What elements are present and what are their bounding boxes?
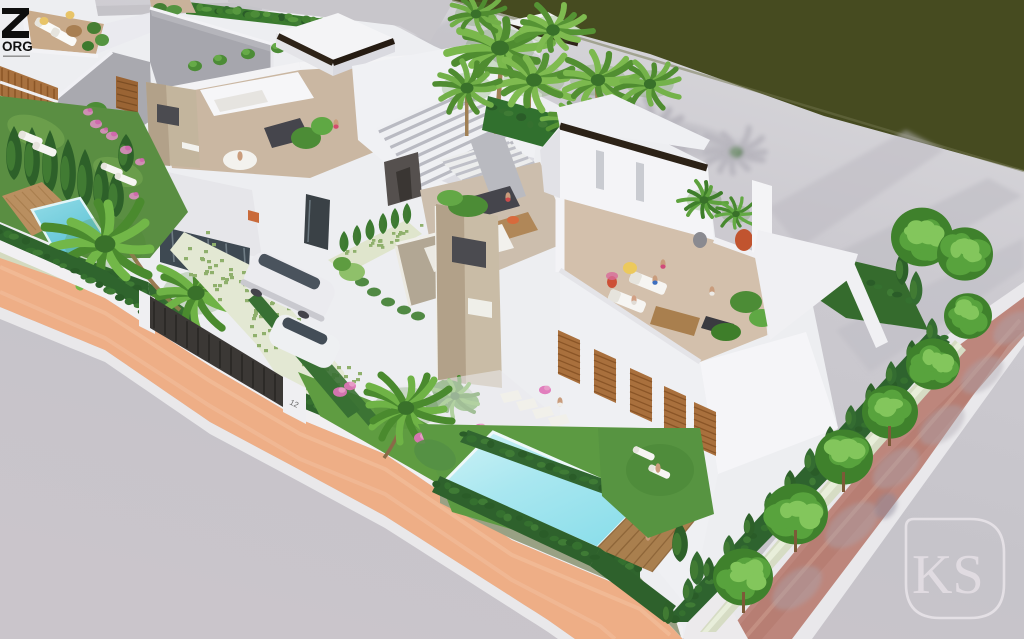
svg-text:KS: KS [912,544,984,606]
svg-text:ORG: ORG [2,39,33,54]
